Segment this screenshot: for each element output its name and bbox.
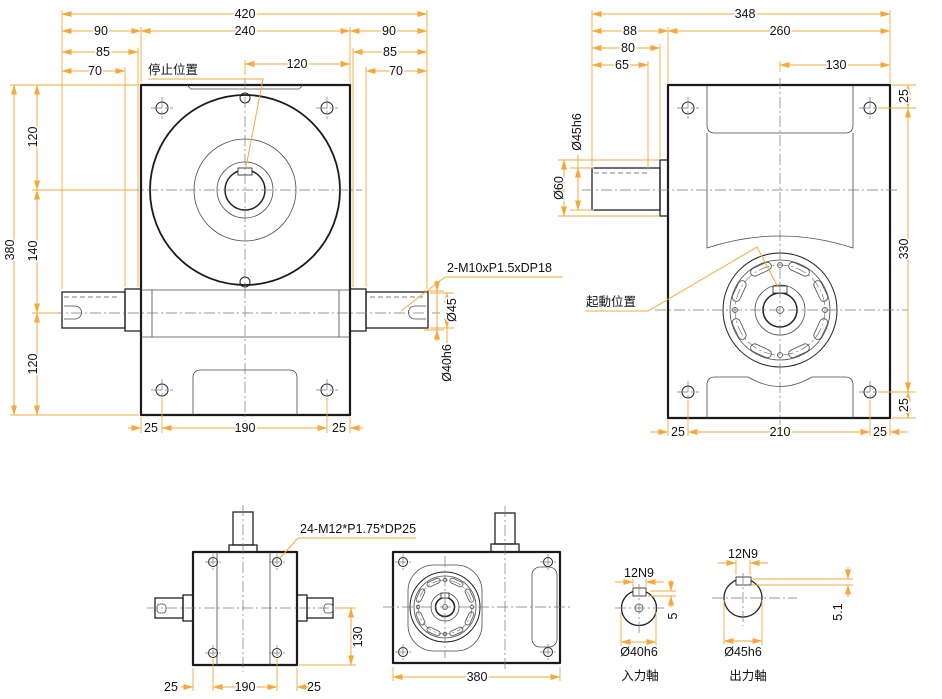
dim-190: 190 — [235, 421, 256, 435]
front-right-shaft — [350, 289, 428, 331]
dim-260: 260 — [770, 24, 791, 38]
dim-70-right: 70 — [389, 64, 403, 78]
dim-85-left: 85 — [96, 45, 110, 59]
cad-drawing: 420 90 240 90 85 85 70 70 120 380 120 14… — [0, 0, 942, 699]
label-output-shaft: 出力軸 — [729, 669, 767, 683]
label-start-position: 起動位置 — [586, 294, 636, 309]
dim-190: 190 — [235, 680, 256, 694]
engineering-drawing-page: 420 90 240 90 85 85 70 70 120 380 120 14… — [0, 0, 942, 699]
dim-80: 80 — [621, 41, 635, 55]
dim-dia45: Ø45 — [445, 298, 459, 322]
note-tap-m10: 2-M10xP1.5xDP18 — [447, 261, 552, 275]
dim-380: 380 — [3, 240, 17, 261]
output-shaft-section: 12N9 5.1 Ø45h6 出力軸 — [712, 547, 853, 683]
front-view: 420 90 240 90 85 85 70 70 120 380 120 14… — [3, 7, 563, 435]
dim-120-top: 120 — [287, 57, 308, 71]
dim-key-depth-5-1: 5.1 — [831, 603, 845, 620]
dim-88: 88 — [623, 24, 637, 38]
dim-25-right: 25 — [307, 680, 321, 694]
dim-dia45h6: Ø45h6 — [724, 645, 762, 659]
dim-25-bl: 25 — [671, 425, 685, 439]
side-view: 348 88 260 80 65 130 25 330 25 25 210 25… — [552, 7, 916, 439]
dim-240: 240 — [235, 24, 256, 38]
dim-90-left: 90 — [94, 24, 108, 38]
output-shaft-dimensions: 12N9 5.1 Ø45h6 出力軸 — [718, 547, 853, 683]
side-input-shaft — [592, 160, 668, 216]
dim-140: 140 — [26, 241, 40, 262]
side-view-geometry — [582, 78, 908, 425]
top-dimensions: 380 — [393, 667, 560, 684]
dim-330: 330 — [897, 239, 911, 260]
dim-dia45h6: Ø45h6 — [570, 113, 584, 151]
input-shaft-keyway — [633, 588, 646, 596]
front-left-shaft — [62, 289, 141, 331]
dim-25-top: 25 — [897, 89, 911, 103]
dim-120-upper: 120 — [26, 127, 40, 148]
note-tap-m12: 24-M12*P1.75*DP25 — [300, 522, 416, 536]
dim-65: 65 — [615, 58, 629, 72]
dim-25-left: 25 — [164, 680, 178, 694]
dim-key-12n9: 12N9 — [728, 547, 758, 561]
front-mounting-holes — [151, 97, 338, 401]
dim-420: 420 — [235, 7, 256, 21]
input-shaft-dimensions: 12N9 5 Ø40h6 入力軸 — [615, 566, 680, 683]
input-shaft-section: 12N9 5 Ø40h6 入力軸 — [615, 566, 680, 683]
dim-380: 380 — [467, 670, 488, 684]
label-stop-position: 停止位置 — [148, 62, 198, 77]
dim-key-12n9: 12N9 — [624, 566, 654, 580]
dim-130: 130 — [351, 627, 365, 648]
bottom-body — [193, 552, 297, 665]
dim-dia40h6: Ø40h6 — [620, 645, 658, 659]
dim-210: 210 — [770, 425, 791, 439]
dim-90-right: 90 — [382, 24, 396, 38]
dim-dia40h6: Ø40h6 — [440, 344, 454, 382]
bottom-view: 25 190 25 130 24-M12*P1.75*DP25 — [147, 505, 416, 694]
dim-dia60: Ø60 — [552, 176, 566, 200]
dim-25-right: 25 — [332, 421, 346, 435]
output-shaft-keyway — [736, 577, 751, 585]
dim-70-left: 70 — [88, 64, 102, 78]
front-dimensions: 420 90 240 90 85 85 70 70 120 380 120 14… — [3, 7, 563, 435]
dim-key-depth-5: 5 — [666, 612, 680, 619]
dim-25-bottom: 25 — [897, 398, 911, 412]
side-dimensions: 348 88 260 80 65 130 25 330 25 25 210 25… — [552, 7, 916, 439]
dim-25-left: 25 — [144, 421, 158, 435]
front-view-geometry — [52, 78, 440, 425]
label-input-shaft: 入力軸 — [621, 669, 659, 683]
side-body — [668, 85, 890, 418]
dim-130: 130 — [826, 58, 847, 72]
dim-85-right: 85 — [383, 45, 397, 59]
dim-120-lower: 120 — [26, 354, 40, 375]
dim-25-br: 25 — [873, 425, 887, 439]
dim-348: 348 — [735, 7, 756, 21]
